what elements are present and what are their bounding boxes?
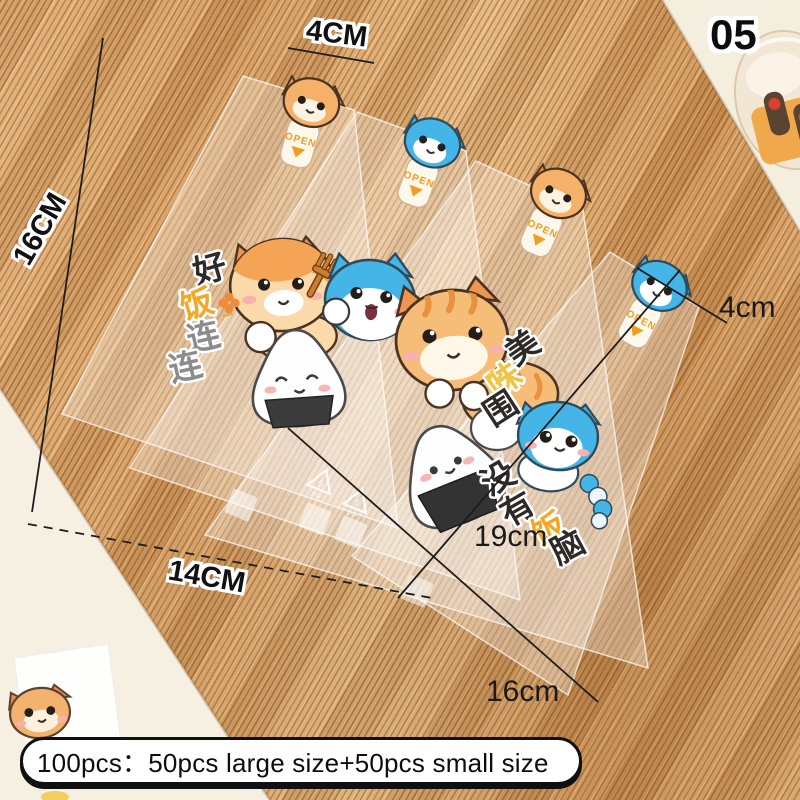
measure-line-large-length [32,38,103,512]
product-photo: OPEN OPEN OPEN [0,0,800,800]
page-number-badge: 05 [710,14,757,56]
label-small-length: 19cm [474,522,547,552]
caption-pill: 100pcs：50pcs large size+50pcs small size [20,737,582,785]
label-large-top-width: 4CM [304,16,368,52]
label-small-top-width: 4cm [719,293,776,323]
caption-text: 100pcs：50pcs large size+50pcs small size [37,743,549,780]
scene-canvas: OPEN OPEN OPEN [0,0,800,800]
label-small-bottom-width: 16cm [486,677,559,707]
